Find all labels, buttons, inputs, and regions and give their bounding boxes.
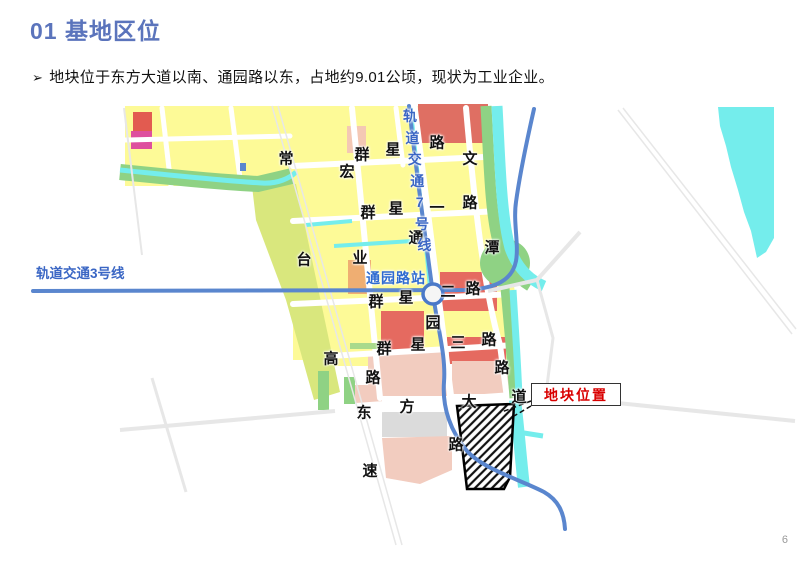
site-location-map: 常台高速宏业路群星路群星一路群星二路群星三路文潭路通园路东方大道轨道交通7号线 … xyxy=(0,0,800,566)
slide: 01 基地区位 ➢地块位于东方大道以南、通园路以东，占地约9.01公顷，现状为工… xyxy=(0,0,800,566)
station-marker xyxy=(423,284,443,304)
lake xyxy=(718,107,774,258)
map-canvas xyxy=(0,0,800,566)
page-number: 6 xyxy=(782,534,788,546)
